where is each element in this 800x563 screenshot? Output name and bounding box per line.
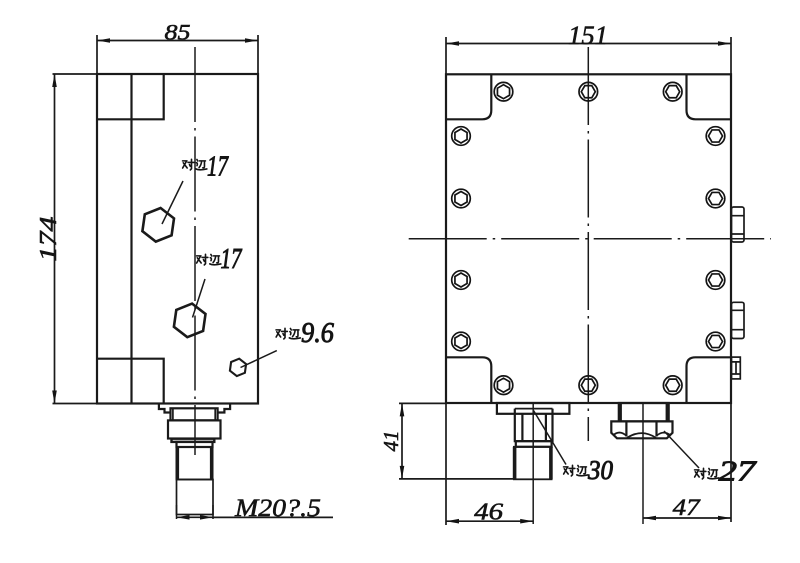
- svg-text:174: 174: [36, 217, 62, 262]
- svg-text:27: 27: [719, 457, 757, 488]
- svg-text:17: 17: [221, 243, 243, 275]
- svg-text:151: 151: [568, 21, 608, 50]
- svg-text:41: 41: [379, 431, 403, 452]
- svg-text:46: 46: [474, 500, 503, 526]
- svg-text:17: 17: [207, 151, 229, 183]
- svg-text:47: 47: [673, 495, 702, 520]
- svg-text:30: 30: [587, 455, 613, 485]
- svg-text:M20?.5: M20?.5: [234, 495, 321, 522]
- svg-text:85: 85: [165, 20, 191, 45]
- svg-text:9.6: 9.6: [301, 317, 334, 349]
